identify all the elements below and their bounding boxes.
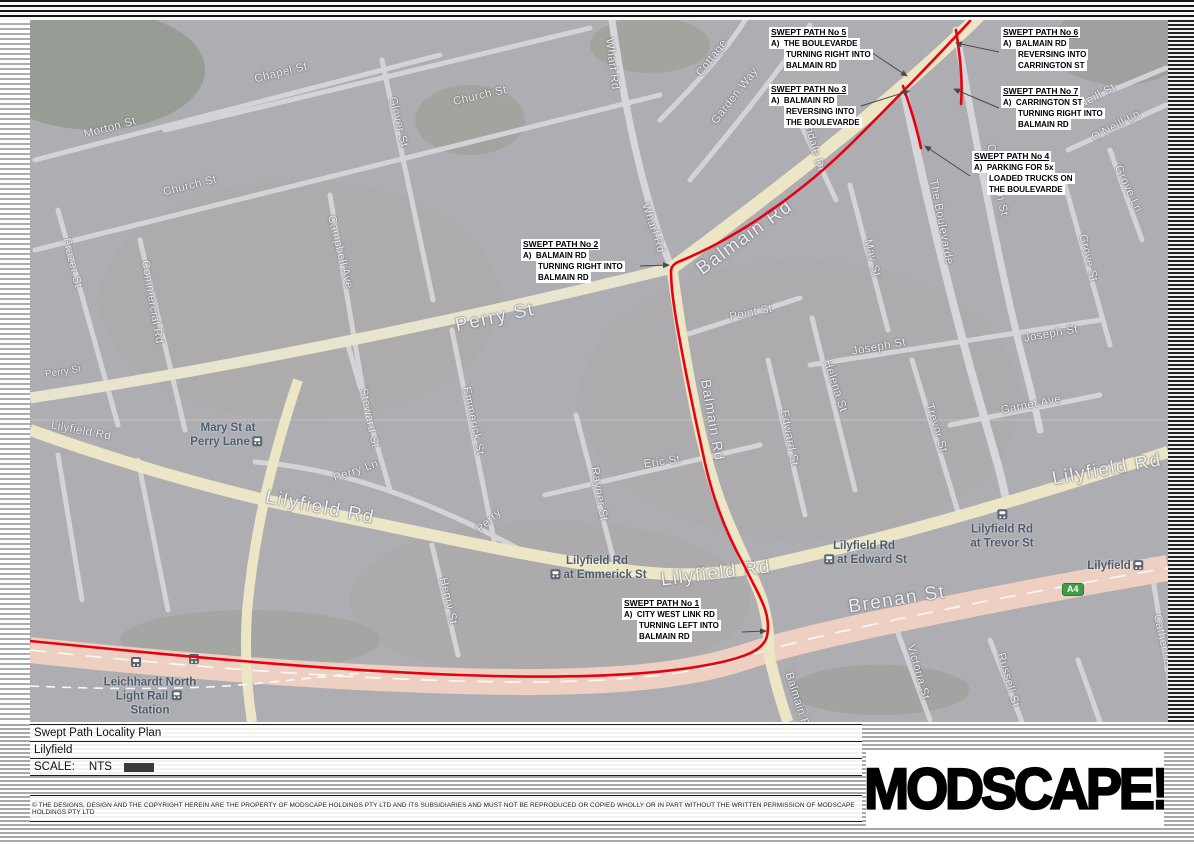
map: Morton StChapel StChurch StChurch StGlov…: [30, 20, 1168, 722]
plan-title-row: Swept Path Locality Plan: [30, 724, 862, 741]
disclaimer-text: © THE DESIGNS, DESIGN AND THE COPYRIGHT …: [32, 802, 860, 816]
swept-path-city-west-link-balmain: [30, 21, 970, 677]
swept-path-overlay: [30, 20, 1168, 722]
callout-leader-arrow: [640, 265, 669, 266]
title-block-gap: [30, 776, 862, 795]
stripe-band-right: [1168, 20, 1194, 722]
modscape-logo-text: MODSCAPE!: [866, 757, 1164, 823]
callout-leader-arrow: [871, 52, 907, 76]
swept-path-carrington: [956, 30, 962, 104]
project-name: Lilyfield: [34, 744, 72, 756]
scale-bar: [124, 763, 154, 772]
project-row: Lilyfield: [30, 741, 862, 758]
callout-leader-arrow: [742, 631, 766, 632]
callout-leader-arrow: [925, 146, 970, 176]
disclaimer-row: © THE DESIGNS, DESIGN AND THE COPYRIGHT …: [30, 795, 862, 822]
plan-title: Swept Path Locality Plan: [34, 727, 161, 739]
callout-leader-arrow: [956, 43, 999, 52]
title-block: Swept Path Locality Plan Lilyfield SCALE…: [30, 724, 862, 822]
scale-value: NTS: [89, 761, 112, 773]
scale-label: SCALE:: [34, 761, 75, 773]
stripe-band-top: [0, 0, 1194, 20]
plan-canvas: Morton StChapel StChurch StChurch StGlov…: [0, 0, 1194, 844]
scale-row: SCALE: NTS: [30, 758, 862, 776]
callout-leader-arrow: [861, 91, 909, 106]
swept-path-boulevarde: [903, 86, 921, 148]
modscape-logo: MODSCAPE!: [866, 752, 1164, 828]
stripe-band-left: [0, 20, 30, 722]
